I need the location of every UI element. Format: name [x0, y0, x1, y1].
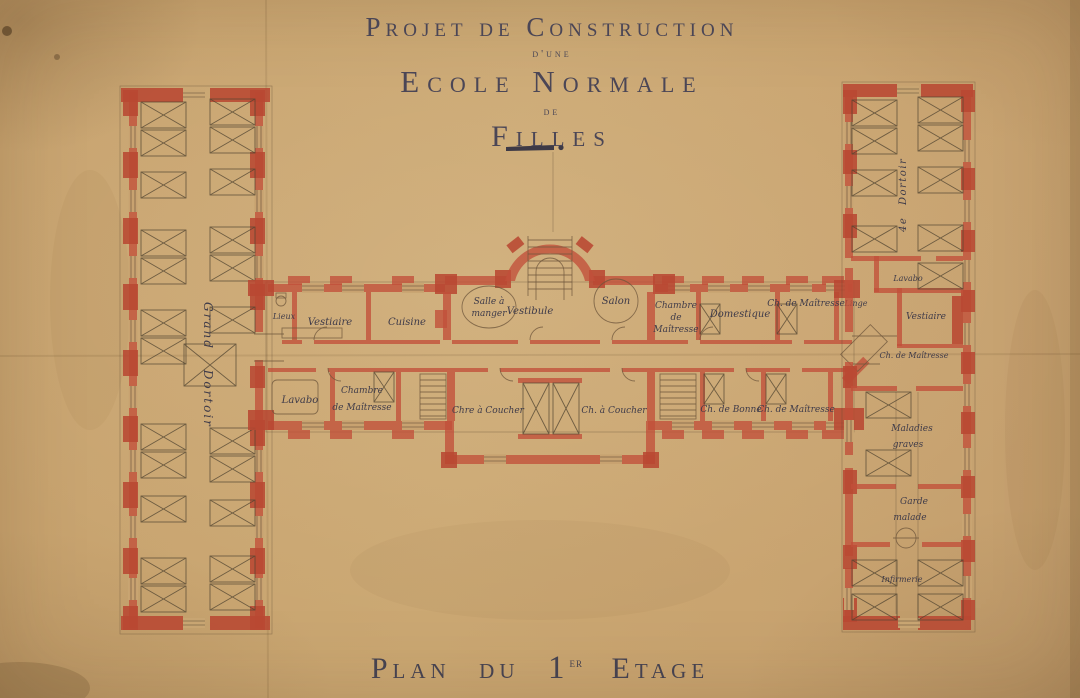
title-line-2: d'une: [327, 49, 777, 60]
svg-text:manger: manger: [471, 309, 507, 319]
room-label-ch-maitresse-right: Ch. de Maîtresse: [880, 351, 949, 360]
title-line-1: Projet de Construction: [327, 14, 777, 41]
title-line-3: Ecole Normale: [327, 66, 777, 97]
title-line-4: de: [327, 105, 777, 117]
caption-floor-number: 1: [548, 650, 570, 686]
room-label-lieux: Lieux: [272, 312, 296, 321]
room-label-domestique: Domestique: [709, 309, 771, 320]
right-wing-labels: 4e Dortoir Lavabo Vestiaire Ch. de Maîtr…: [880, 158, 949, 584]
room-label-lavabo-right: Lavabo: [892, 274, 922, 283]
title-line-5: Filles: [327, 122, 777, 152]
room-label-ch-maitresse-2: Ch. de Maîtresse: [757, 404, 835, 415]
room-label-chambre-coucher-1: Chre à Coucher: [452, 405, 525, 416]
room-label-salle-a-manger: Salle à: [474, 296, 505, 307]
room-label-grand-dortoir: Grand Dortoir: [201, 302, 215, 428]
caption-prefix: Plan du: [371, 652, 520, 685]
central-block: Lieux Vestiaire Cuisine Salle à manger V…: [248, 236, 897, 468]
svg-text:de: de: [670, 313, 681, 323]
service-stair-right: [660, 374, 696, 419]
room-label-chambre-maitresse: Chambre: [655, 301, 697, 311]
svg-text:malade: malade: [893, 513, 926, 523]
room-label-maladies-graves: Maladies: [890, 424, 933, 434]
plan-caption: Plan du 1er Etage: [0, 650, 1080, 687]
stove: [893, 528, 919, 548]
right-wing: 4e Dortoir Lavabo Vestiaire Ch. de Maîtr…: [842, 82, 975, 632]
room-label-ch-de-bonne: Ch. de Bonne: [700, 405, 761, 415]
svg-text:graves: graves: [893, 440, 924, 450]
room-label-vestibule: Vestibule: [507, 306, 554, 317]
svg-text:Maîtresse: Maîtresse: [652, 324, 698, 335]
room-label-infirmerie: Infirmerie: [881, 575, 923, 584]
svg-text:de Maîtresse: de Maîtresse: [332, 402, 391, 413]
caption-floor-exponent: er: [570, 655, 584, 670]
room-label-vestiaire: Vestiaire: [308, 317, 353, 328]
light-shaft: [518, 378, 582, 439]
service-stair-left: [420, 374, 446, 419]
room-label-lavabo: Lavabo: [281, 395, 319, 406]
room-label-garde-malade: Garde: [900, 497, 928, 507]
plan-sheet: Grand Dortoir: [0, 0, 1080, 698]
room-label-salon: Salon: [602, 296, 630, 307]
caption-suffix: Etage: [612, 652, 710, 685]
room-label-ch-maitresse: Ch. de Maîtresse: [767, 298, 845, 309]
room-label-chambre-coucher-2: Ch. à Coucher: [581, 405, 647, 416]
left-wing: Grand Dortoir: [120, 86, 284, 634]
room-label-chambre-maitresse-2: Chambre: [341, 386, 383, 396]
central-walls: [248, 236, 870, 468]
room-label-vestiaire-right: Vestiaire: [906, 312, 946, 322]
room-label-4e-dortoir: 4e Dortoir: [898, 158, 909, 233]
room-label-cuisine: Cuisine: [388, 317, 426, 328]
title-block: Projet de Construction d'une Ecole Norma…: [327, 0, 777, 152]
